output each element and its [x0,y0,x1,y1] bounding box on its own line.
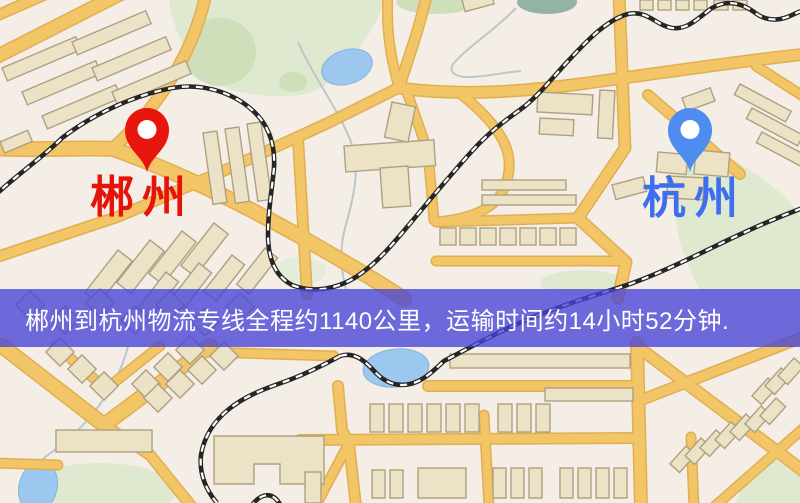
route-info-text: 郴州到杭州物流专线全程约1140公里，运输时间约14小时52分钟. [25,301,729,336]
logistics-route-map: 郴州 杭州 郴州到杭州物流专线全程约1140公里，运输时间约14小时52分钟. [0,0,800,503]
map-background [0,0,800,503]
destination-pin-icon [660,106,720,172]
origin-pin-shape [125,108,169,172]
origin-city-label: 郴州 [90,176,194,220]
destination-city-label: 杭州 [642,177,746,221]
origin-pin-icon [117,106,177,172]
destination-pin-shape [668,108,712,172]
route-info-banner: 郴州到杭州物流专线全程约1140公里，运输时间约14小时52分钟. [0,289,800,347]
